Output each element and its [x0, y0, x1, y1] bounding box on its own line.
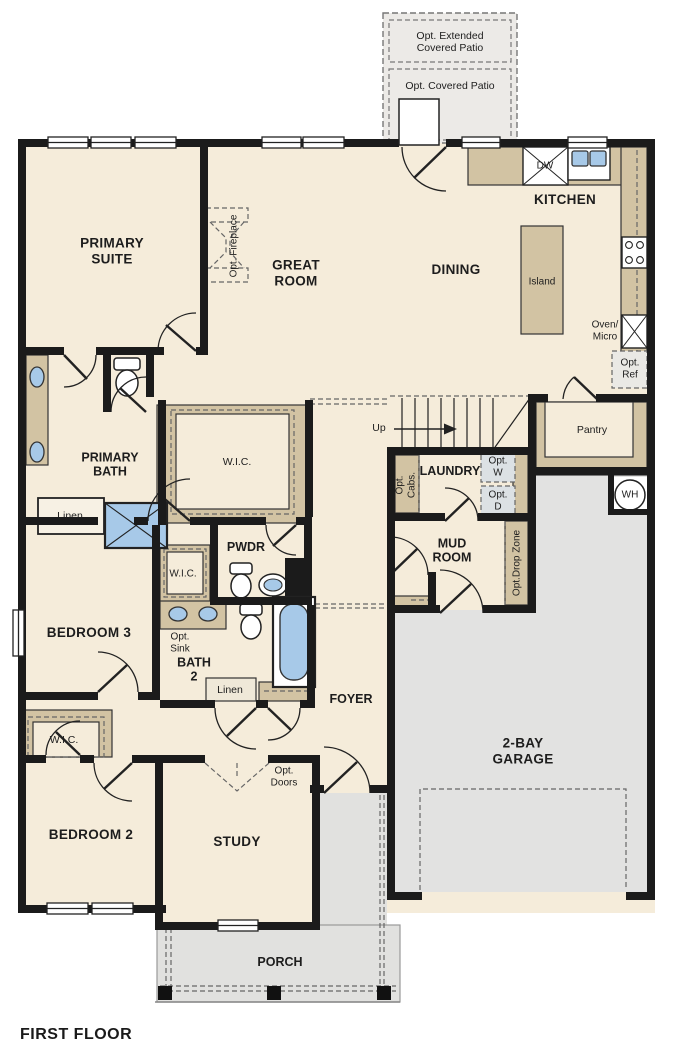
- window: [218, 920, 258, 931]
- window: [47, 903, 88, 914]
- wh-label: WH: [622, 489, 639, 501]
- dw-label: DW: [537, 160, 554, 172]
- opt-fireplace-label: Opt. Fireplace: [228, 215, 240, 278]
- window: [303, 137, 344, 148]
- study-label: STUDY: [213, 834, 260, 850]
- window: [92, 903, 133, 914]
- primary-sink-2: [30, 442, 44, 462]
- kitchen-label: KITCHEN: [534, 192, 596, 208]
- stove-icon: [622, 237, 647, 268]
- island-label: Island: [529, 276, 556, 288]
- window: [568, 137, 607, 148]
- opt-w-label: Opt. W: [489, 456, 508, 479]
- foyer-label: FOYER: [329, 692, 372, 706]
- opt-d-label: Opt. D: [489, 490, 508, 513]
- dining-label: DINING: [431, 262, 480, 278]
- great-room-label: GREAT ROOM: [272, 257, 320, 288]
- laundry-label: LAUNDRY: [420, 464, 481, 478]
- mud-room-label: MUD ROOM: [433, 537, 472, 566]
- window: [262, 137, 301, 148]
- pwdr-toilet-icon: [230, 563, 252, 598]
- patio-door-landing: [399, 99, 439, 145]
- bedroom2-label: BEDROOM 2: [49, 827, 133, 843]
- bath2-label: BATH 2: [177, 656, 211, 685]
- primary-sink-1: [30, 367, 44, 387]
- opt-doors-label: Opt. Doors: [271, 766, 298, 789]
- up-label: Up: [372, 422, 385, 434]
- window: [91, 137, 131, 148]
- oven-micro-icon: [622, 315, 647, 348]
- window: [462, 137, 500, 148]
- pwdr-sink-icon: [259, 574, 287, 596]
- bed3-wic-label: W.I.C.: [169, 568, 196, 580]
- pantry-label: Pantry: [577, 424, 607, 436]
- primary-bath-label: PRIMARY BATH: [81, 451, 138, 480]
- bed2-wic-label: W.I.C.: [50, 734, 79, 746]
- bath2-toilet-icon: [240, 604, 262, 639]
- bedroom3-label: BEDROOM 3: [47, 625, 131, 641]
- opt-ref-label: Opt. Ref: [621, 358, 640, 381]
- drop-zone-label: Opt.Drop Zone: [511, 530, 523, 596]
- primary-suite-label: PRIMARY SUITE: [80, 235, 144, 266]
- bath2-sink-1: [169, 607, 187, 621]
- opt-cabs-label: Opt. Cabs.: [395, 472, 418, 498]
- window: [13, 610, 24, 656]
- porch-label: PORCH: [257, 955, 302, 969]
- kitchen-sink-icon: [568, 147, 610, 180]
- primary-wic-label: W.I.C.: [223, 456, 252, 468]
- floorplan-drawing: [0, 0, 673, 1055]
- opt-extended-patio-label: Opt. Extended Covered Patio: [416, 30, 483, 54]
- primary-linen-label: Linen: [57, 510, 83, 522]
- page-title: FIRST FLOOR: [20, 1026, 132, 1044]
- bath2-sink-2: [199, 607, 217, 621]
- opt-covered-patio-label: Opt. Covered Patio: [405, 80, 494, 92]
- oven-micro-label: Oven/ Micro: [592, 320, 619, 343]
- bath2-linen-label: Linen: [217, 684, 243, 696]
- garage-label: 2-BAY GARAGE: [492, 735, 553, 766]
- window: [48, 137, 88, 148]
- opt-sink-label: Opt. Sink: [170, 632, 189, 655]
- window: [135, 137, 176, 148]
- first-floor-plan: Opt. Extended Covered Patio Opt. Covered…: [0, 0, 673, 1055]
- porch-walkway: [320, 793, 387, 926]
- pwdr-label: PWDR: [227, 540, 265, 554]
